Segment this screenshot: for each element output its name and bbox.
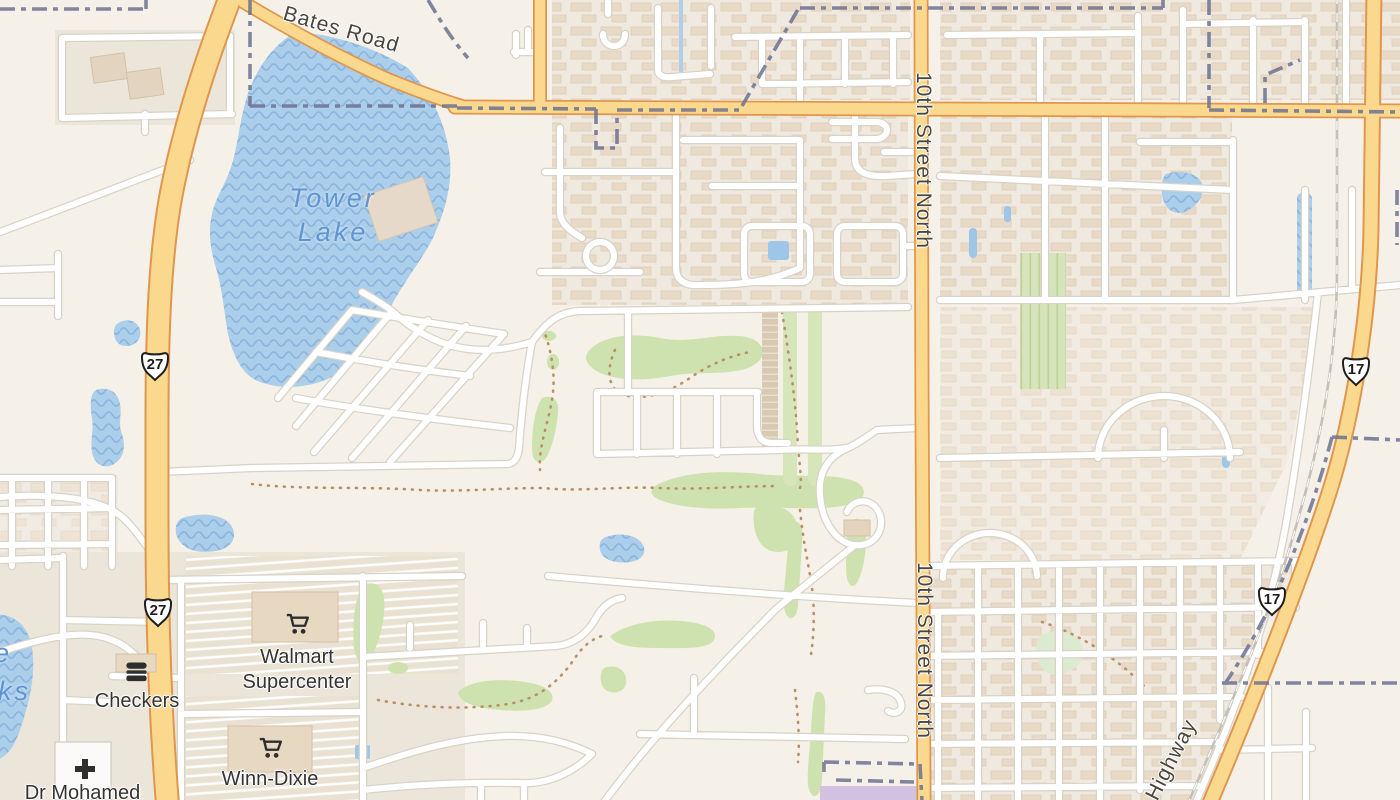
shopping-cart-icon xyxy=(257,734,284,761)
dr-mohamed-label: Dr Mohamed xyxy=(0,782,165,800)
checkers-label: Checkers xyxy=(57,690,217,713)
us-route-17-shield: 17 xyxy=(1339,355,1373,387)
water-label-fragment-bottom: ks xyxy=(0,676,31,707)
shopping-cart-icon xyxy=(284,610,311,637)
lake-name-label: Tower Lake xyxy=(258,183,408,248)
us-route-27-shield: 27 xyxy=(141,596,175,628)
lavender-landuse-area xyxy=(820,786,928,800)
medical-cross-icon xyxy=(73,757,97,781)
driving-range-strip xyxy=(762,306,778,448)
10th-street-north-label-top: 10th Street North xyxy=(911,72,935,249)
walmart-supercenter-label: Walmart Supercenter xyxy=(197,646,397,694)
winn-dixie-label: Winn-Dixie xyxy=(170,768,370,791)
golf-clubhouse-building xyxy=(844,520,870,536)
map-canvas[interactable]: Tower Lake Bates Road 10th Street North … xyxy=(0,0,1400,800)
us-route-27-shield: 27 xyxy=(138,350,172,382)
burger-icon xyxy=(123,658,150,685)
water-label-fragment-top: e xyxy=(0,638,12,669)
us-route-17-shield: 17 xyxy=(1255,585,1289,617)
10th-street-north-label-bottom: 10th Street North xyxy=(912,562,936,739)
